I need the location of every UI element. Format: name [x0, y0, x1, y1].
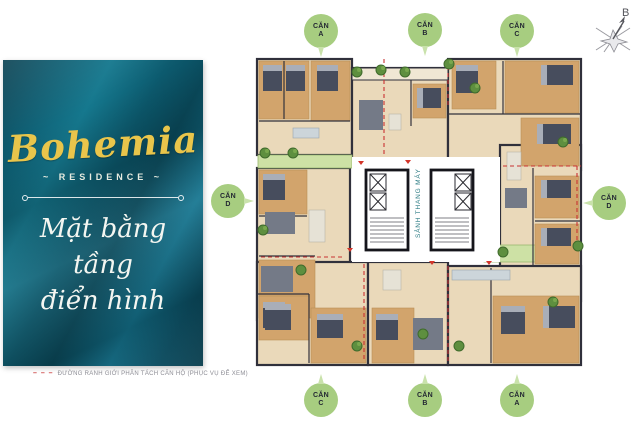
marker-line1: CĂN: [601, 195, 617, 203]
legend: – – –ĐƯỜNG RANH GIỚI PHÂN TÁCH CĂN HỘ (P…: [33, 370, 253, 377]
marker-line2: C: [514, 31, 519, 39]
brand-panel: Bohemia ~ RESIDENCE ~ Mặt bằng tầng điển…: [3, 60, 203, 366]
unit-marker-top-b: CĂN B: [408, 13, 442, 47]
marker-line2: D: [606, 203, 611, 211]
page-title-line1: Mặt bằng: [3, 212, 203, 248]
unit-marker-top-c: CĂN C: [500, 14, 534, 48]
marker-line1: CĂN: [509, 392, 525, 400]
brand-divider: [28, 197, 178, 198]
marker-line2: D: [225, 201, 230, 209]
unit-marker-bottom-a: CĂN A: [500, 383, 534, 417]
page-title: Mặt bằng tầng điển hình: [3, 212, 203, 320]
unit-marker-bottom-c: CĂN C: [304, 383, 338, 417]
marker-line2: A: [514, 400, 519, 408]
page-title-line2: tầng: [3, 248, 203, 284]
marker-line1: CĂN: [417, 392, 433, 400]
floorplan-svg: SẢNH THANG MÁY: [253, 56, 587, 370]
marker-line2: B: [422, 30, 427, 38]
marker-line1: CĂN: [417, 22, 433, 30]
marker-line1: CĂN: [313, 392, 329, 400]
legend-text: ĐƯỜNG RANH GIỚI PHÂN TÁCH CĂN HỘ (PHỤC V…: [58, 371, 248, 377]
compass-icon: B: [594, 6, 636, 58]
core-label: SẢNH THANG MÁY: [413, 168, 422, 238]
residence-label: ~ RESIDENCE ~: [3, 172, 203, 182]
marker-line2: C: [318, 400, 323, 408]
marker-line1: CĂN: [220, 193, 236, 201]
marker-line2: B: [422, 400, 427, 408]
brand-logo: Bohemia: [2, 117, 204, 171]
page-title-line3: điển hình: [3, 284, 203, 320]
marker-line2: A: [318, 31, 323, 39]
marker-line1: CĂN: [509, 23, 525, 31]
unit-marker-bottom-b: CĂN B: [408, 383, 442, 417]
unit-marker-left-d: CĂN D: [211, 184, 245, 218]
unit-marker-right-d: CĂN D: [592, 186, 626, 220]
compass-north-label: B: [622, 7, 629, 19]
legend-dash-icon: – – –: [33, 370, 54, 377]
unit-marker-top-a: CĂN A: [304, 14, 338, 48]
core: SẢNH THANG MÁY: [352, 157, 500, 262]
marker-line1: CĂN: [313, 23, 329, 31]
